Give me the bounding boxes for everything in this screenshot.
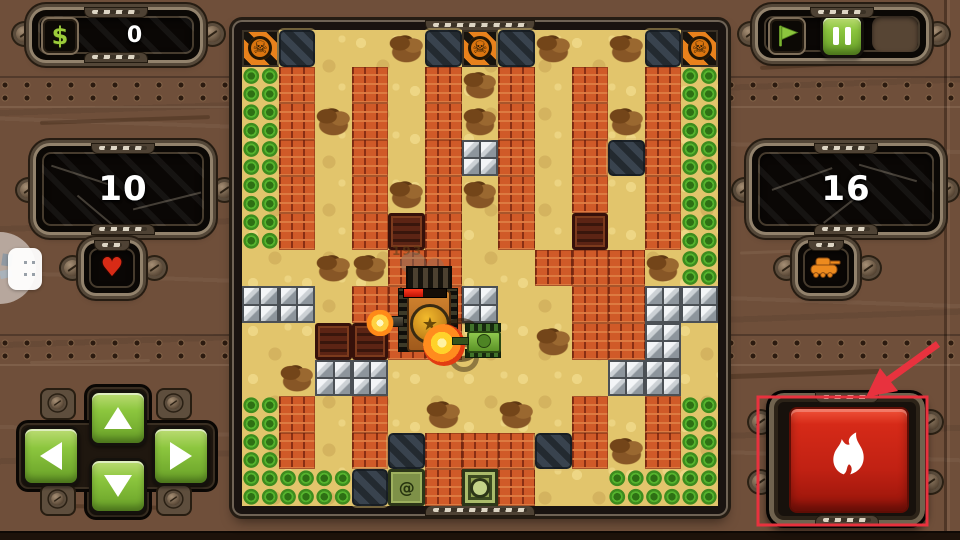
panel-notch (84, 7, 148, 18)
tile-sand (535, 176, 572, 213)
tile-brick (572, 176, 609, 213)
panel-notch (815, 515, 879, 526)
screw (742, 26, 759, 42)
tank-icon-screen (803, 248, 849, 288)
tile-brick (425, 433, 462, 470)
skull-icon: ☠ (462, 30, 499, 67)
tile-brick (279, 140, 316, 177)
tile-brick (572, 323, 609, 360)
tile-debris (462, 67, 499, 104)
tile-sand (498, 250, 535, 287)
tile-debris (645, 250, 682, 287)
tile-brick (388, 323, 425, 360)
screw (16, 26, 33, 42)
dpad-up-button[interactable] (89, 390, 147, 446)
tile-sand (315, 286, 352, 323)
tile-camo-plate (388, 433, 425, 470)
screw (51, 493, 64, 505)
fire-button-frame (766, 390, 928, 528)
tile-brick (352, 213, 389, 250)
tile-brick (572, 433, 609, 470)
tile-brick (352, 286, 389, 323)
tile-camo-plate (535, 433, 572, 470)
screw (167, 493, 180, 505)
bottom-edge-strip (0, 531, 960, 540)
tile-debris (608, 103, 645, 140)
tile-debris (388, 30, 425, 67)
screw (860, 260, 877, 276)
tile-brick (645, 140, 682, 177)
tile-brick (572, 286, 609, 323)
tile-crate (572, 213, 609, 250)
tile-brick (279, 103, 316, 140)
tile-brick (425, 286, 462, 323)
dpad-lug (156, 388, 192, 420)
tile-sand (462, 360, 499, 397)
tile-steel (645, 286, 682, 323)
tile-sand (352, 30, 389, 67)
tile-brick (425, 323, 462, 360)
panel-notch (91, 224, 155, 235)
tile-sand (462, 396, 499, 433)
tile-brick (279, 176, 316, 213)
tile-sand (681, 323, 718, 360)
tile-camo-plate (279, 30, 316, 67)
overlay-drag-handle[interactable] (8, 248, 42, 290)
dpad-lug (40, 388, 76, 420)
panel-notch (91, 143, 155, 154)
tile-sand (242, 360, 279, 397)
wood-grain-streak (760, 58, 910, 70)
lives-value: 10 (42, 152, 204, 226)
tile-crate (352, 323, 389, 360)
flag-icon (774, 23, 800, 49)
flame-icon (825, 431, 873, 489)
tile-sand (498, 323, 535, 360)
pause-bar (845, 27, 851, 45)
tile-bush (645, 469, 682, 506)
tile-brick (608, 286, 645, 323)
tile-bush (681, 396, 718, 433)
screw (64, 260, 81, 276)
tile-bush (608, 469, 645, 506)
dpad-down-button[interactable] (89, 458, 147, 514)
enemies-panel: 16 (752, 146, 940, 232)
tile-brick (425, 103, 462, 140)
tile-debris (315, 103, 352, 140)
tile-brick (645, 176, 682, 213)
tile-brick (572, 250, 609, 287)
tile-sand (242, 250, 279, 287)
wood-grain-streak (700, 369, 880, 380)
money-value: 0 (76, 16, 194, 54)
tile-bush (242, 213, 279, 250)
tile-brick (425, 176, 462, 213)
tile-sand (498, 360, 535, 397)
tile-brick (279, 433, 316, 470)
tile-brick (645, 213, 682, 250)
tile-bush (242, 469, 279, 506)
tile-brick (608, 250, 645, 287)
tile-bush (242, 103, 279, 140)
tile-brick (352, 176, 389, 213)
tile-camo-plate (608, 140, 645, 177)
tile-sand (242, 323, 279, 360)
tile-brick (645, 433, 682, 470)
tile-sand (315, 67, 352, 104)
tile-sand (315, 30, 352, 67)
tile-brick (352, 140, 389, 177)
fire-button[interactable] (789, 407, 909, 513)
tile-bush (279, 469, 316, 506)
right-arrow-icon (170, 442, 192, 470)
panel-notch (814, 143, 878, 154)
tile-debris (462, 176, 499, 213)
tile-brick (425, 213, 462, 250)
tile-sand (572, 469, 609, 506)
tile-sand (388, 140, 425, 177)
tile-debris (608, 30, 645, 67)
tile-bush (242, 67, 279, 104)
pause-button[interactable] (820, 14, 864, 58)
tile-bush (681, 176, 718, 213)
tile-sand (572, 30, 609, 67)
tile-bush (242, 140, 279, 177)
tile-debris (608, 433, 645, 470)
tile-sand (462, 323, 499, 360)
down-arrow-icon (104, 475, 132, 497)
enemies-value: 16 (758, 152, 934, 226)
tile-brick (645, 67, 682, 104)
enemies-icon-module (798, 243, 854, 293)
tile-brick (388, 286, 425, 323)
tile-brick (498, 469, 535, 506)
tile-camo-plate (352, 469, 389, 506)
tile-steel (279, 286, 316, 323)
heart-icon: ♥ (100, 253, 123, 283)
tile-brick (645, 396, 682, 433)
screw (167, 397, 180, 409)
tile-brick (572, 67, 609, 104)
screw (146, 260, 163, 276)
tile-brick (352, 396, 389, 433)
tile-bush (681, 213, 718, 250)
tile-spawn-point: @ (388, 469, 425, 506)
screw (778, 260, 795, 276)
handle-dot (24, 273, 27, 276)
start-flag-button[interactable] (768, 17, 806, 55)
tile-brick (645, 103, 682, 140)
tile-sand (425, 360, 462, 397)
tile-bush (681, 67, 718, 104)
tile-sand (535, 286, 572, 323)
tile-brick (425, 250, 462, 287)
tile-steel (645, 323, 682, 360)
tile-debris (462, 103, 499, 140)
tile-steel (608, 360, 645, 397)
tile-sand (315, 433, 352, 470)
tile-sand (462, 250, 499, 287)
playback-panel (758, 10, 926, 58)
panel-notch (808, 240, 844, 251)
dpad-lug (156, 484, 192, 516)
tile-brick (425, 67, 462, 104)
tile-crate (315, 323, 352, 360)
tile-skull-hazard: ☠ (462, 30, 499, 67)
tile-sand (535, 103, 572, 140)
tile-sand (608, 176, 645, 213)
tile-steel (645, 360, 682, 397)
tile-sand (535, 67, 572, 104)
tile-steel (315, 360, 352, 397)
tile-camo-plate (645, 30, 682, 67)
tile-sand (498, 286, 535, 323)
tile-sand (572, 360, 609, 397)
tile-sand (315, 140, 352, 177)
wood-grain-streak (40, 115, 210, 125)
tile-brick (498, 103, 535, 140)
handle-dot (32, 273, 35, 276)
empty-slot (872, 16, 918, 52)
skull-icon: ☠ (242, 30, 279, 67)
money-panel: 0 $ (32, 10, 200, 60)
tile-brick (572, 140, 609, 177)
dollar-icon: $ (52, 22, 69, 50)
tile-brick (279, 396, 316, 433)
tile-debris (352, 250, 389, 287)
tile-brick (352, 433, 389, 470)
tile-sand (462, 213, 499, 250)
pause-bar (833, 27, 839, 45)
tile-sand (388, 67, 425, 104)
tile-sand (608, 213, 645, 250)
board-notch-bottom (425, 505, 535, 516)
tile-sand (535, 140, 572, 177)
tile-brick (498, 433, 535, 470)
tile-sand (535, 469, 572, 506)
panel-notch (810, 7, 874, 18)
lives-screen: 10 (42, 152, 204, 226)
panel-notch (94, 240, 130, 251)
board-frame: ☠☠☠@ 193 ★ (234, 22, 726, 514)
tile-brick (498, 67, 535, 104)
screw (929, 26, 946, 42)
tile-brick (279, 67, 316, 104)
lives-icon-module: ♥ (84, 243, 140, 293)
handle-dot (24, 261, 27, 264)
tile-sand (388, 396, 425, 433)
tile-brick (462, 433, 499, 470)
lives-panel: 10 (36, 146, 210, 232)
tile-brick (572, 103, 609, 140)
screw (938, 182, 955, 198)
screw (216, 182, 233, 198)
tile-sand (279, 323, 316, 360)
tile-crate (388, 213, 425, 250)
tile-sand (388, 103, 425, 140)
tile-sand (535, 396, 572, 433)
enemies-screen: 16 (758, 152, 934, 226)
skull-icon: ☠ (681, 30, 718, 67)
tile-sand (681, 360, 718, 397)
tile-sand (608, 67, 645, 104)
tile-debris (315, 250, 352, 287)
tile-debris (425, 396, 462, 433)
tile-skull-hazard: ☠ (681, 30, 718, 67)
money-icon-cell: $ (41, 17, 79, 55)
tile-steel (352, 360, 389, 397)
tile-steel (462, 140, 499, 177)
tile-bush (242, 176, 279, 213)
tile-sand (279, 250, 316, 287)
panel-notch (84, 52, 148, 63)
tile-sand (535, 213, 572, 250)
panel-notch (815, 392, 879, 403)
screw (204, 26, 221, 42)
tile-brick (352, 103, 389, 140)
tile-camo-plate (425, 30, 462, 67)
tile-bush (681, 469, 718, 506)
tile-camo-plate (498, 30, 535, 67)
tile-bush (315, 469, 352, 506)
game-screen: 0 $ 10 (0, 0, 960, 540)
tile-debris (535, 323, 572, 360)
tile-brick (352, 67, 389, 104)
enemy-tank-icon (809, 256, 843, 280)
tile-steel (462, 286, 499, 323)
tile-brick (388, 250, 425, 287)
screw (736, 182, 753, 198)
tile-sand (608, 396, 645, 433)
tile-debris (535, 30, 572, 67)
tile-bush (681, 250, 718, 287)
battlefield: ☠☠☠@ (242, 30, 718, 506)
tile-brick (498, 140, 535, 177)
tile-bush (242, 396, 279, 433)
tile-brick (425, 140, 462, 177)
tile-debris (498, 396, 535, 433)
tile-sand (535, 360, 572, 397)
spawn-icon: @ (388, 469, 425, 506)
tile-sand (388, 360, 425, 397)
screw (51, 397, 64, 409)
up-arrow-icon (104, 407, 132, 429)
heart-screen: ♥ (89, 248, 135, 288)
tile-brick (498, 176, 535, 213)
left-arrow-icon (40, 442, 62, 470)
tile-steel (681, 286, 718, 323)
tile-sand (315, 213, 352, 250)
tile-brick (608, 323, 645, 360)
screw (20, 182, 37, 198)
tile-debris (279, 360, 316, 397)
tile-sand (315, 396, 352, 433)
tile-brick (279, 213, 316, 250)
tile-bush (681, 103, 718, 140)
dpad-left-button[interactable] (22, 426, 80, 486)
tile-bush (681, 140, 718, 177)
tile-brick (425, 469, 462, 506)
tile-brick (572, 396, 609, 433)
tile-bush (242, 433, 279, 470)
tile-brick (535, 250, 572, 287)
tile-steel (242, 286, 279, 323)
tile-home-base (462, 469, 499, 506)
tile-bush (681, 433, 718, 470)
dpad-lug (40, 484, 76, 516)
dpad-right-button[interactable] (152, 426, 210, 486)
handle-dot (32, 261, 35, 264)
tile-sand (315, 176, 352, 213)
panel-notch (814, 224, 878, 235)
tile-brick (498, 213, 535, 250)
tile-debris (388, 176, 425, 213)
tile-skull-hazard: ☠ (242, 30, 279, 67)
